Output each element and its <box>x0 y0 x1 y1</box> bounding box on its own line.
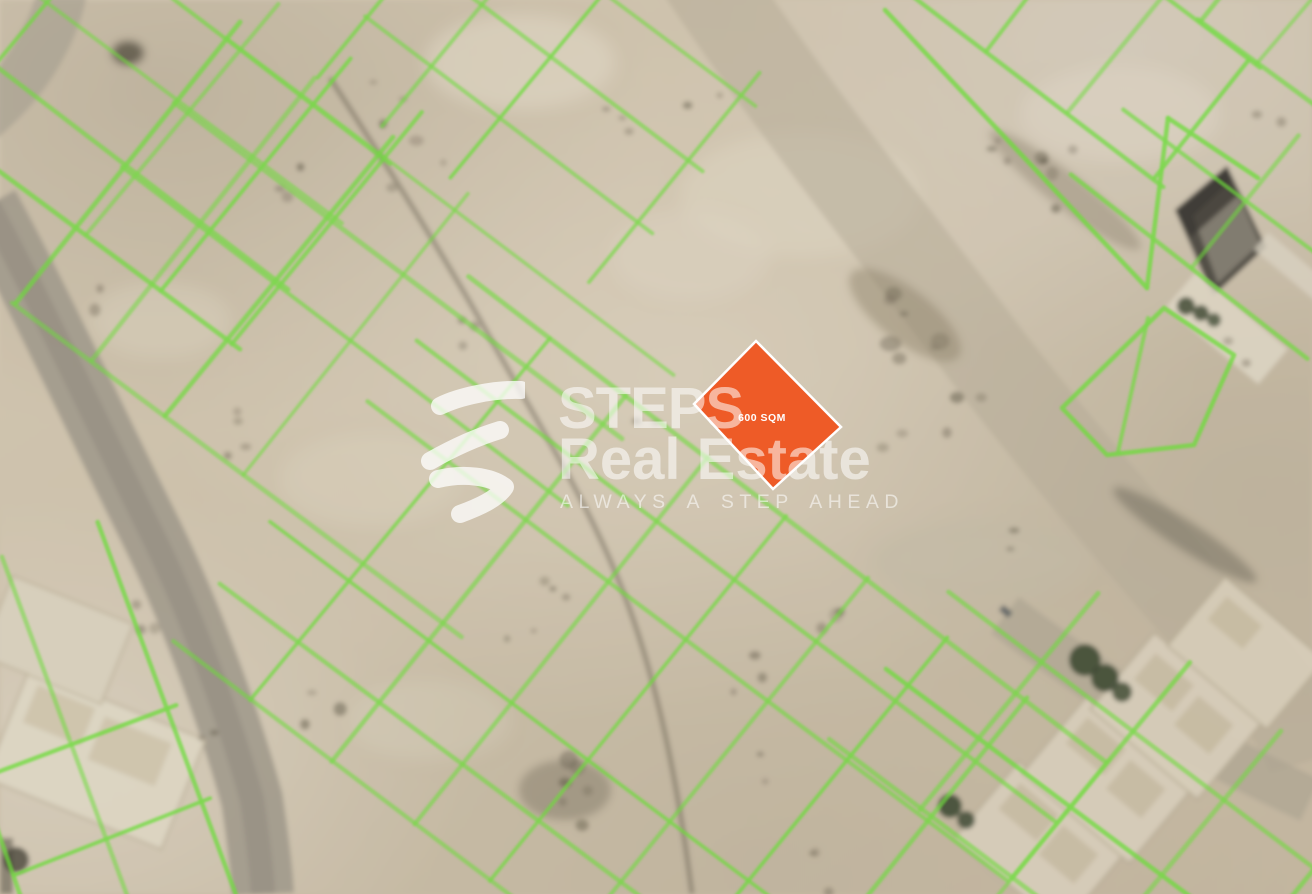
plot-area-label: 600 SQM <box>738 412 786 424</box>
satellite-map: 600 SQM <box>0 0 1312 894</box>
land-plot-listing-image: 600 SQM STEPS Real Estate ALWAYS A STEP … <box>0 0 1312 894</box>
